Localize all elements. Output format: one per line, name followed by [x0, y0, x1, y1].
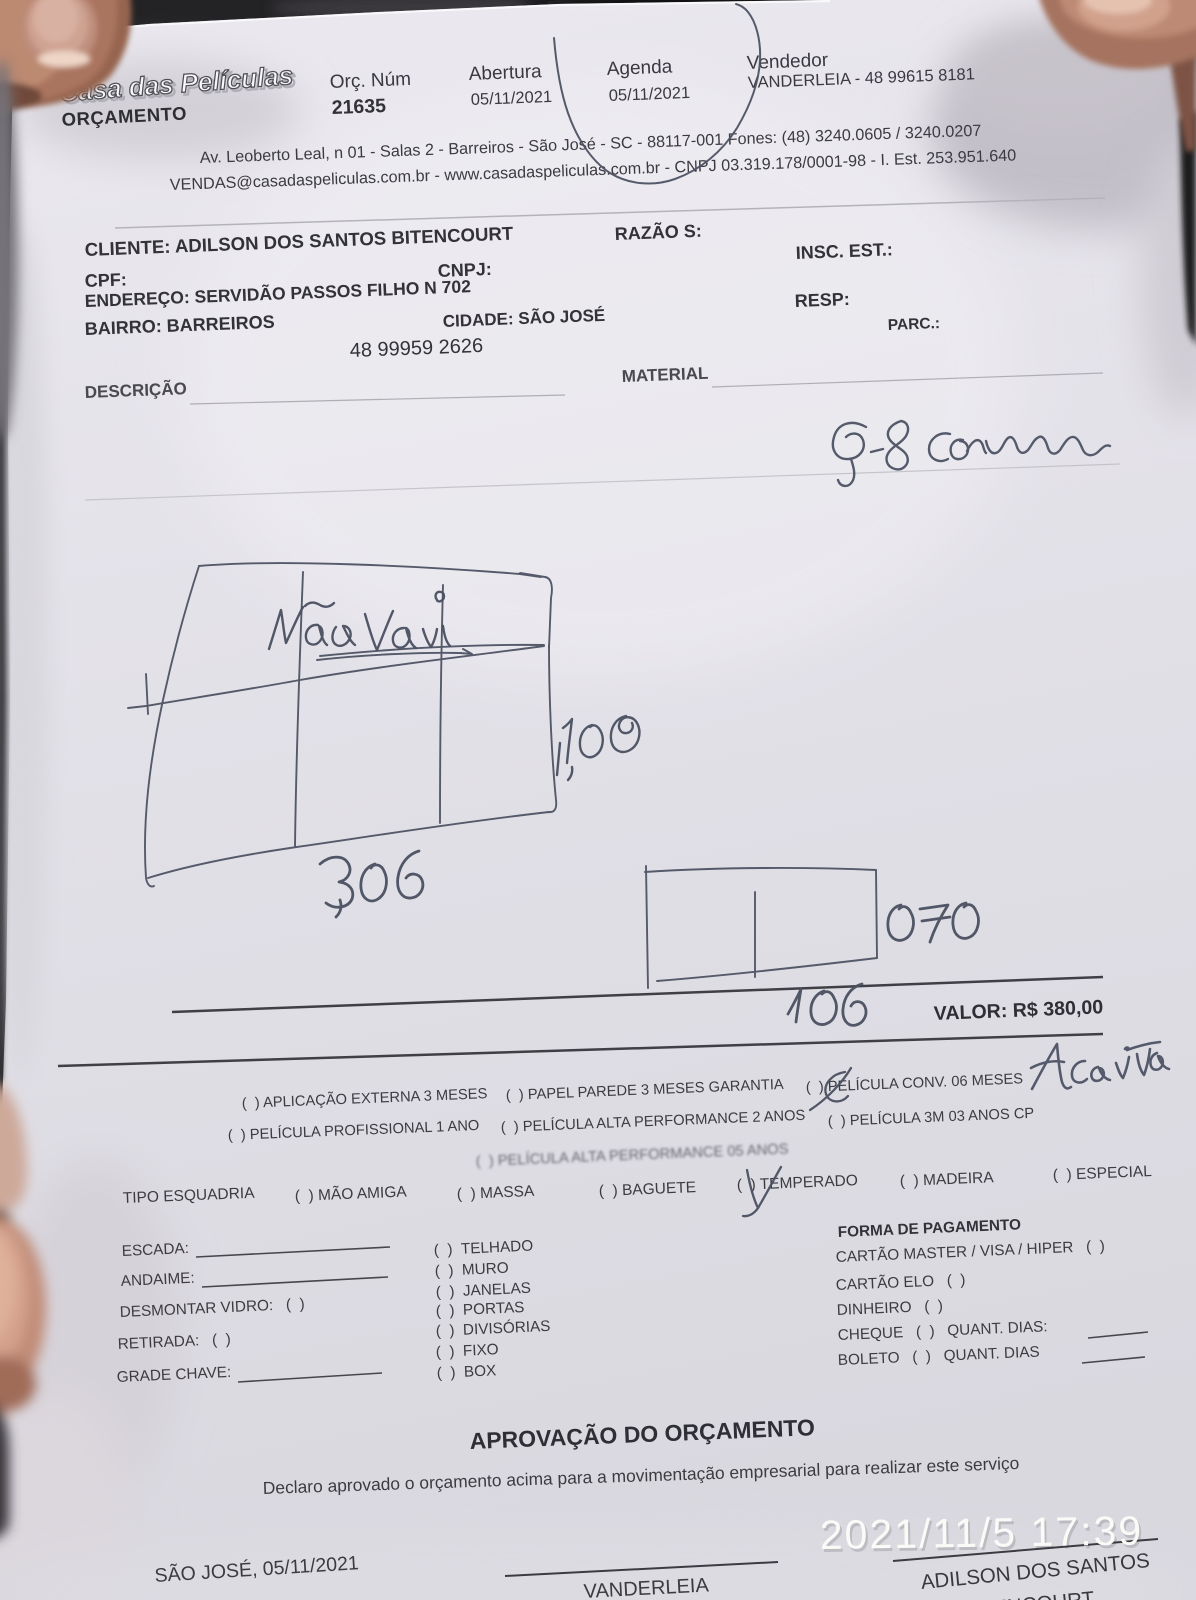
svg-text:2021/11/5 17:39: 2021/11/5 17:39	[819, 1507, 1143, 1558]
svg-text:CPF:: CPF:	[84, 269, 127, 291]
svg-text:Abertura: Abertura	[468, 61, 542, 85]
svg-text:21635: 21635	[331, 95, 386, 119]
svg-text:( ) MURO: ( ) MURO	[434, 1260, 509, 1280]
svg-text:05/11/2021: 05/11/2021	[470, 88, 552, 109]
svg-text:DESCRIÇÃO: DESCRIÇÃO	[84, 378, 187, 402]
svg-text:05/11/2021: 05/11/2021	[608, 84, 690, 105]
svg-text:INSC. EST.:: INSC. EST.:	[795, 239, 893, 263]
svg-text:( ) MASSA: ( ) MASSA	[456, 1183, 535, 1203]
svg-text:MATERIAL: MATERIAL	[621, 364, 708, 386]
svg-text:( ) FIXO: ( ) FIXO	[435, 1341, 499, 1361]
svg-text:PARC.:: PARC.:	[888, 315, 941, 334]
svg-text:RAZÃO S:: RAZÃO S:	[614, 220, 702, 244]
svg-text:ESCADA:: ESCADA:	[121, 1240, 189, 1260]
svg-text:Orç. Núm: Orç. Núm	[329, 69, 411, 93]
svg-text:ANDAIME:: ANDAIME:	[120, 1270, 195, 1290]
svg-text:Agenda: Agenda	[606, 56, 673, 80]
svg-text:( ) BOX: ( ) BOX	[436, 1362, 496, 1382]
svg-text:RESP:: RESP:	[794, 289, 850, 311]
